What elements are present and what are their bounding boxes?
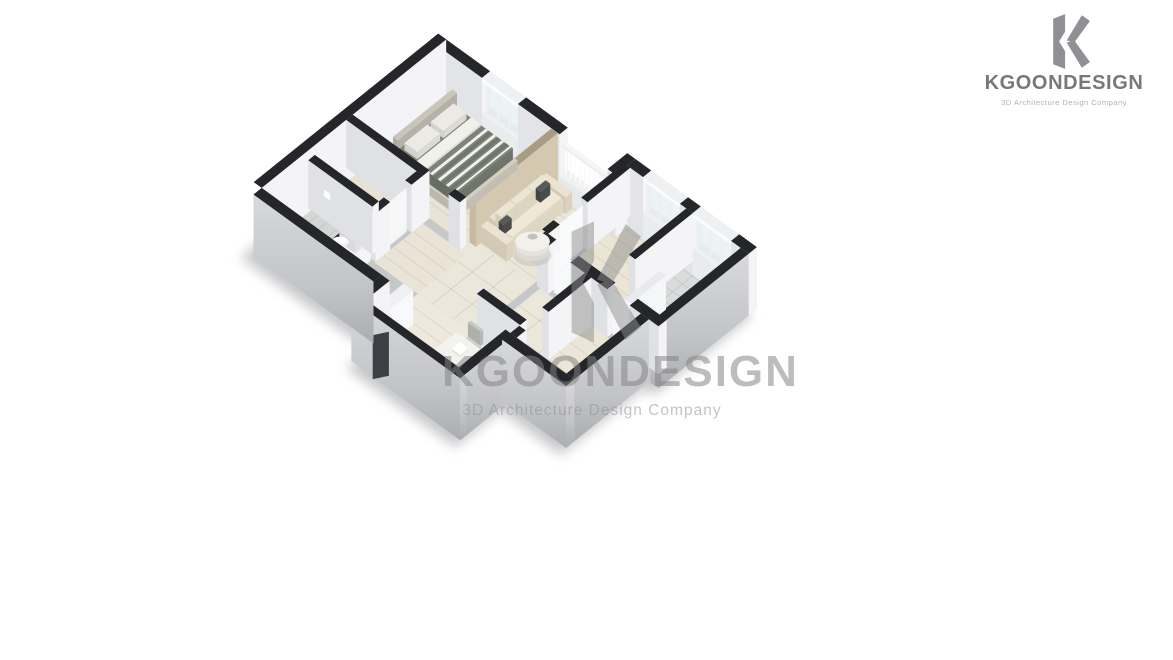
- page: KGOONDESIGN 3D Architecture Design Compa…: [0, 0, 1173, 660]
- brand-logo: KGOONDESIGN 3D Architecture Design Compa…: [979, 13, 1149, 107]
- round-coffee-table: [514, 232, 552, 267]
- logo-k-mark-icon: [1037, 13, 1091, 70]
- logo-title: KGOONDESIGN: [979, 72, 1149, 95]
- logo-tagline: 3D Architecture Design Company: [979, 98, 1149, 107]
